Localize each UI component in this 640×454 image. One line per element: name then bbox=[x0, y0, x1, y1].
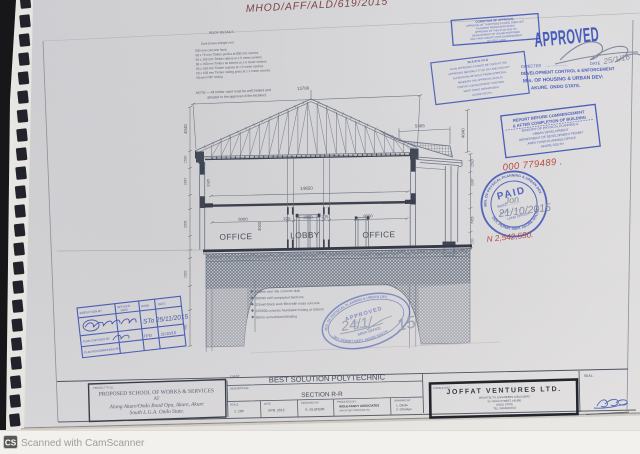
svg-text:1520: 1520 bbox=[184, 270, 188, 278]
svg-text:14850: 14850 bbox=[300, 186, 313, 191]
svg-text:1530: 1530 bbox=[184, 155, 188, 163]
svg-text:DATE: DATE bbox=[590, 60, 601, 66]
svg-text:6000: 6000 bbox=[238, 217, 248, 222]
svg-text:1 :100: 1 :100 bbox=[234, 409, 244, 413]
svg-text:PROJECT TITLE:: PROJECT TITLE: bbox=[93, 385, 114, 390]
svg-text:4040: 4040 bbox=[183, 124, 188, 134]
svg-text:AT: AT bbox=[153, 397, 159, 402]
svg-text:SIGN: SIGN bbox=[120, 308, 127, 313]
svg-text:SEAL:: SEAL: bbox=[584, 374, 594, 378]
svg-text:Jon: Jon bbox=[503, 194, 520, 206]
svg-text:DATE: DATE bbox=[158, 301, 166, 306]
svg-text:7455: 7455 bbox=[471, 216, 475, 224]
svg-text:Scanned with CamScanner: Scanned with CamScanner bbox=[21, 438, 145, 449]
svg-text:150: 150 bbox=[471, 238, 475, 244]
svg-text:2367: 2367 bbox=[184, 177, 188, 185]
svg-text:3185: 3185 bbox=[207, 179, 211, 187]
svg-text:2. Omolayo: 2. Omolayo bbox=[396, 407, 412, 411]
svg-text:DESCRIPTION:: DESCRIPTION: bbox=[230, 386, 249, 391]
svg-text:LOBBY: LOBBY bbox=[290, 230, 320, 241]
svg-text:SECTION R-R: SECTION R-R bbox=[301, 391, 343, 399]
svg-text:DATE: DATE bbox=[264, 402, 271, 406]
svg-text:2205: 2205 bbox=[184, 220, 188, 228]
svg-text:S. OLUFEMI: S. OLUFEMI bbox=[305, 407, 324, 412]
svg-text:DESIGNED BY:: DESIGNED BY: bbox=[301, 400, 320, 404]
svg-text:2367: 2367 bbox=[471, 178, 475, 186]
svg-text:CLIENT:: CLIENT: bbox=[230, 374, 240, 378]
svg-text:225: 225 bbox=[283, 216, 291, 221]
svg-text:1530: 1530 bbox=[471, 159, 475, 167]
svg-text:5485: 5485 bbox=[415, 123, 425, 128]
svg-text:SCALE: SCALE bbox=[230, 402, 239, 406]
svg-text:DRAWING BY:: DRAWING BY: bbox=[394, 398, 412, 402]
svg-text:CS: CS bbox=[5, 438, 17, 447]
svg-text:2850: 2850 bbox=[303, 215, 313, 220]
svg-text:13788: 13788 bbox=[297, 85, 310, 91]
svg-text:TPO: TPO bbox=[143, 333, 152, 339]
svg-text:OFFICE: OFFICE bbox=[219, 231, 252, 242]
svg-text:3000: 3000 bbox=[257, 221, 262, 231]
svg-text:8000: 8000 bbox=[363, 213, 373, 218]
svg-text:OFFICE: OFFICE bbox=[362, 229, 395, 240]
svg-text:4040: 4040 bbox=[461, 128, 466, 138]
svg-text:225: 225 bbox=[321, 214, 329, 219]
svg-text:TEL: 08036900002: TEL: 08036900002 bbox=[493, 406, 516, 411]
svg-text:APR. 2015: APR. 2015 bbox=[268, 408, 285, 412]
svg-text:STo: STo bbox=[143, 317, 155, 325]
